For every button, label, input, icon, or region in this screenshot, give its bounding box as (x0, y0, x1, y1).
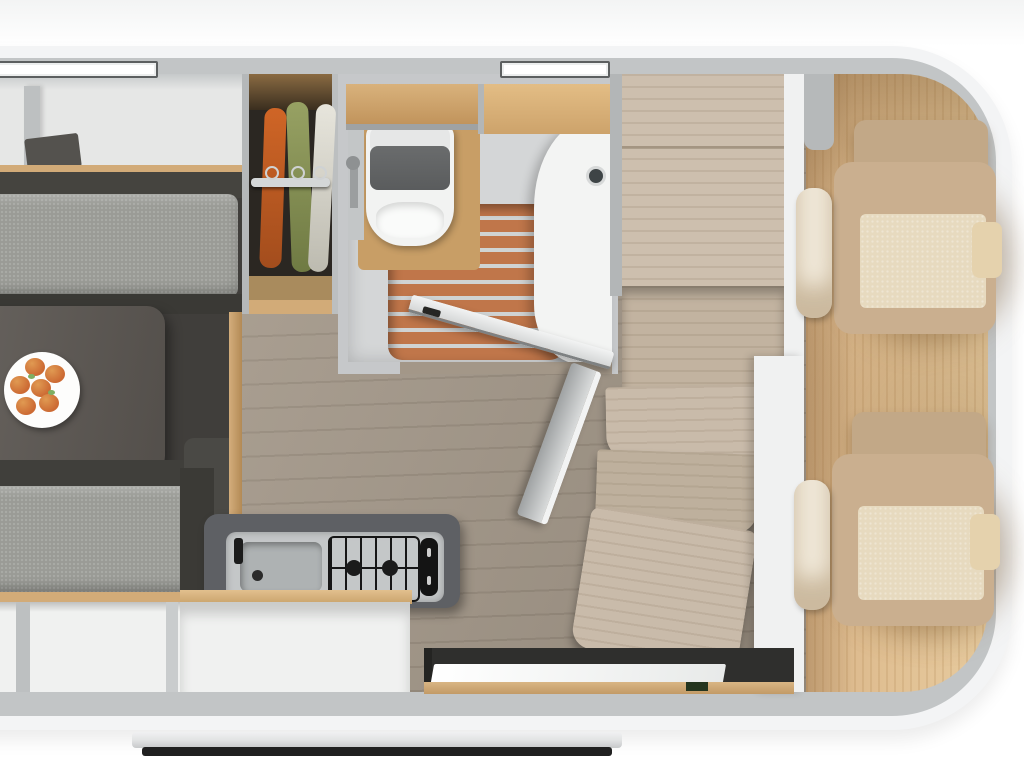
toilet-bowl (376, 202, 444, 238)
wardrobe-floor (249, 276, 332, 302)
roof-window-left (0, 61, 158, 78)
sink-drain (252, 570, 263, 581)
seat-center-panel (860, 214, 986, 308)
seat-side-bracket (970, 514, 1000, 570)
cab-seat-right (822, 402, 1000, 642)
hob-control-panel (420, 538, 438, 596)
seat-armrest (796, 188, 832, 318)
hanger-hook (313, 166, 327, 180)
burner (382, 560, 398, 576)
garment-orange (259, 108, 287, 269)
floorplan-canvas (0, 0, 1024, 768)
kitchen-faucet (234, 538, 243, 564)
bathroom-shelf-left (346, 84, 478, 130)
hand-sprayer-head (346, 156, 360, 170)
fruit-plate (4, 352, 80, 428)
threshold-item (686, 682, 708, 691)
wood-platform-upper (622, 74, 784, 286)
background-top (0, 0, 1024, 46)
platform-seam (622, 146, 784, 149)
fruit-leaf (48, 390, 55, 395)
toilet (366, 124, 454, 246)
fruit (25, 358, 45, 376)
shelf-divider (16, 602, 30, 692)
entry-threshold-wood (424, 682, 794, 694)
garment-white (308, 104, 337, 273)
platform-side-wall (610, 74, 622, 296)
seat-armrest (794, 480, 830, 610)
washbasin-counter (534, 118, 612, 364)
overhead-shelf-top (0, 74, 242, 174)
lower-shelf-unit (0, 602, 182, 692)
roof-window-center (500, 61, 610, 78)
hand-sprayer-bar (350, 164, 358, 208)
fruit-leaf (28, 374, 35, 379)
fruit (16, 397, 36, 415)
basin-faucet (586, 166, 606, 186)
cab-seat-left (824, 110, 1000, 345)
wardrobe (242, 74, 338, 314)
seat-side-bracket (972, 222, 1002, 278)
hanger-hook (265, 166, 279, 180)
fruit (10, 376, 30, 394)
exterior-step-rail (132, 732, 622, 748)
door-handle (422, 306, 441, 318)
wardrobe-wood-edge (249, 300, 332, 314)
kitchen-sink (240, 542, 322, 592)
fruit (39, 394, 59, 412)
seat-center-panel (858, 506, 984, 600)
burner (346, 560, 362, 576)
hanger-hook (291, 166, 305, 180)
bathroom-shelf-right (484, 84, 610, 134)
entry-door-area (424, 648, 794, 694)
exterior-step-rail-shadow (142, 747, 612, 756)
shelf-divider (166, 602, 178, 692)
fruit (45, 365, 65, 383)
kitchen-cabinet-front (180, 602, 410, 692)
toilet-seat (370, 146, 450, 190)
bench-front-cushion (0, 486, 192, 594)
bench-rear-cushion (0, 194, 238, 298)
